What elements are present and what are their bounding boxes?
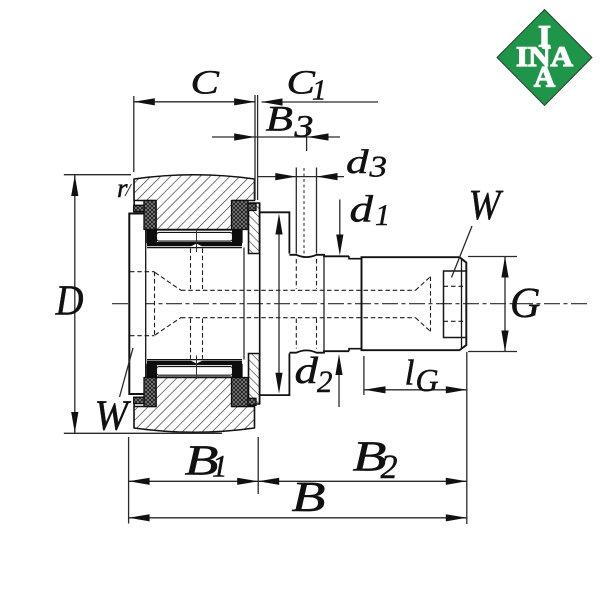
svg-text:G: G bbox=[416, 362, 439, 398]
svg-text:W: W bbox=[95, 393, 132, 440]
svg-text:d: d bbox=[346, 144, 370, 181]
svg-text:1: 1 bbox=[375, 199, 390, 232]
svg-text:G: G bbox=[510, 280, 541, 327]
svg-text:3: 3 bbox=[368, 151, 387, 184]
svg-text:1: 1 bbox=[312, 75, 327, 107]
svg-text:l: l bbox=[405, 353, 415, 393]
svg-text:1: 1 bbox=[212, 449, 228, 484]
svg-text:d: d bbox=[295, 350, 320, 392]
svg-text:B: B bbox=[266, 99, 294, 139]
svg-text:C: C bbox=[191, 65, 220, 102]
svg-text:A: A bbox=[534, 62, 556, 94]
svg-text:d: d bbox=[350, 189, 375, 231]
svg-text:D: D bbox=[55, 278, 84, 325]
svg-text:W: W bbox=[469, 182, 505, 229]
svg-text:2: 2 bbox=[381, 449, 398, 486]
svg-text:B: B bbox=[292, 474, 326, 521]
svg-text:r: r bbox=[117, 173, 128, 203]
svg-text:3: 3 bbox=[293, 109, 313, 144]
svg-text:2: 2 bbox=[317, 364, 333, 399]
